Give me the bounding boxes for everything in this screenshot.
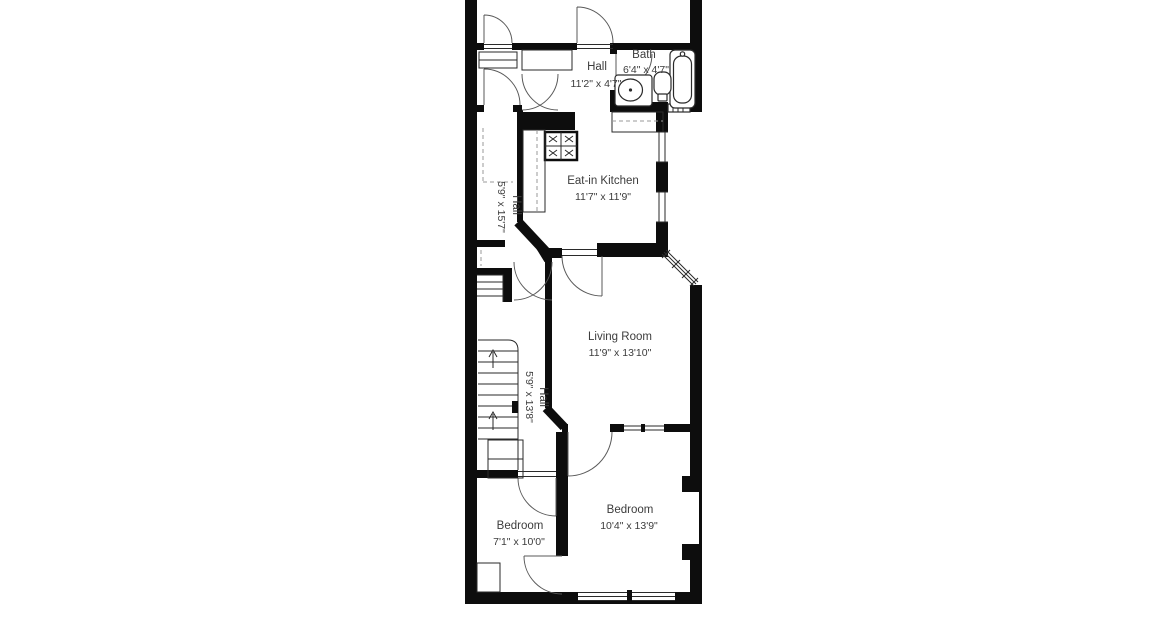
room-name: Bedroom: [497, 520, 544, 532]
window-sill: [484, 45, 512, 49]
window: [656, 192, 668, 222]
wall-stub: [503, 268, 512, 302]
wall-stub: [682, 544, 690, 560]
wall-kitchen-top: [517, 112, 575, 130]
window: [656, 132, 668, 162]
room-dims: 11'9" x 13'10": [589, 347, 652, 359]
door-arc: [562, 256, 602, 296]
wall-recess: [690, 492, 699, 544]
stair-arrow-up: [489, 350, 497, 368]
wall-diagonal: [546, 408, 564, 427]
room-name: Living Room: [588, 331, 652, 343]
chimney-nook: [477, 563, 500, 592]
room-dims: 7'1" x 10'0": [493, 536, 545, 548]
wall-seg: [545, 248, 562, 258]
room-dims: 6'4" x 4'7": [623, 64, 669, 76]
wall-seg: [472, 105, 484, 112]
wall-closet-bottom: [477, 268, 505, 275]
wall-hall-living: [545, 258, 552, 408]
wall-bedroom-divider: [556, 432, 568, 556]
window-sill: [577, 45, 613, 49]
wall-kitchen-right: [656, 162, 668, 192]
room-dims: 11'7" x 11'9": [575, 191, 631, 203]
wall-right-outer-bottom: [690, 285, 702, 604]
door-arc: [577, 7, 613, 43]
floor-plan: Hall 11'2" x 4'7" Bath 6'4" x 4'7" Eat-i…: [0, 0, 1170, 620]
room-dims: 10'4" x 13'9": [600, 520, 658, 532]
wall-seg: [512, 43, 577, 50]
door-arc: [524, 556, 562, 594]
wall-stub: [682, 476, 690, 492]
floor-plan-canvas: Hall 11'2" x 4'7" Bath 6'4" x 4'7" Eat-i…: [0, 0, 1170, 620]
room-kitchen: Eat-in Kitchen 11'7" x 11'9": [567, 175, 639, 203]
wall-seg: [472, 43, 484, 50]
room-name: Bath: [632, 49, 656, 61]
door-arc: [568, 432, 612, 476]
stair-arrow-up: [489, 412, 497, 430]
door-threshold: [562, 250, 597, 256]
wall-seg: [562, 424, 568, 432]
room-bedroom-large: Bedroom 10'4" x 13'9": [600, 504, 658, 532]
door-arc: [484, 69, 520, 105]
room-name: Hall: [587, 61, 607, 73]
room-name: Hall: [510, 195, 522, 215]
door-threshold: [518, 472, 556, 477]
room-name: Hall: [537, 387, 549, 407]
room-dims: 5'9" x 15'7": [495, 181, 507, 233]
room-bedroom-small: Bedroom 7'1" x 10'0": [493, 520, 545, 548]
opening-mullion: [641, 424, 645, 432]
room-name: Bedroom: [607, 504, 654, 516]
room-dims: 11'2" x 4'7": [571, 78, 622, 90]
stove: [545, 132, 577, 160]
window-mullion: [627, 590, 632, 604]
window-bay-diagonal: [662, 250, 698, 286]
room-dims: 5'9" x 13'8": [523, 371, 535, 423]
wall-seg: [610, 424, 624, 432]
wall-seg: [664, 424, 690, 432]
room-living: Living Room 11'9" x 13'10": [588, 331, 652, 359]
toilet: [654, 72, 671, 101]
room-hall-top: Hall 11'2" x 4'7": [571, 61, 622, 90]
bathtub: [670, 50, 695, 108]
door-double-arc: [522, 74, 558, 110]
wall-closet-top: [477, 240, 505, 247]
room-name: Eat-in Kitchen: [567, 175, 639, 187]
door-arc: [518, 478, 556, 516]
wall-left-outer: [465, 0, 477, 604]
wall-bedroom-top: [472, 470, 518, 478]
room-bath: Bath 6'4" x 4'7": [623, 49, 669, 76]
door-arc: [484, 15, 512, 43]
wall-living-top: [597, 243, 668, 257]
staircase: [477, 275, 523, 478]
